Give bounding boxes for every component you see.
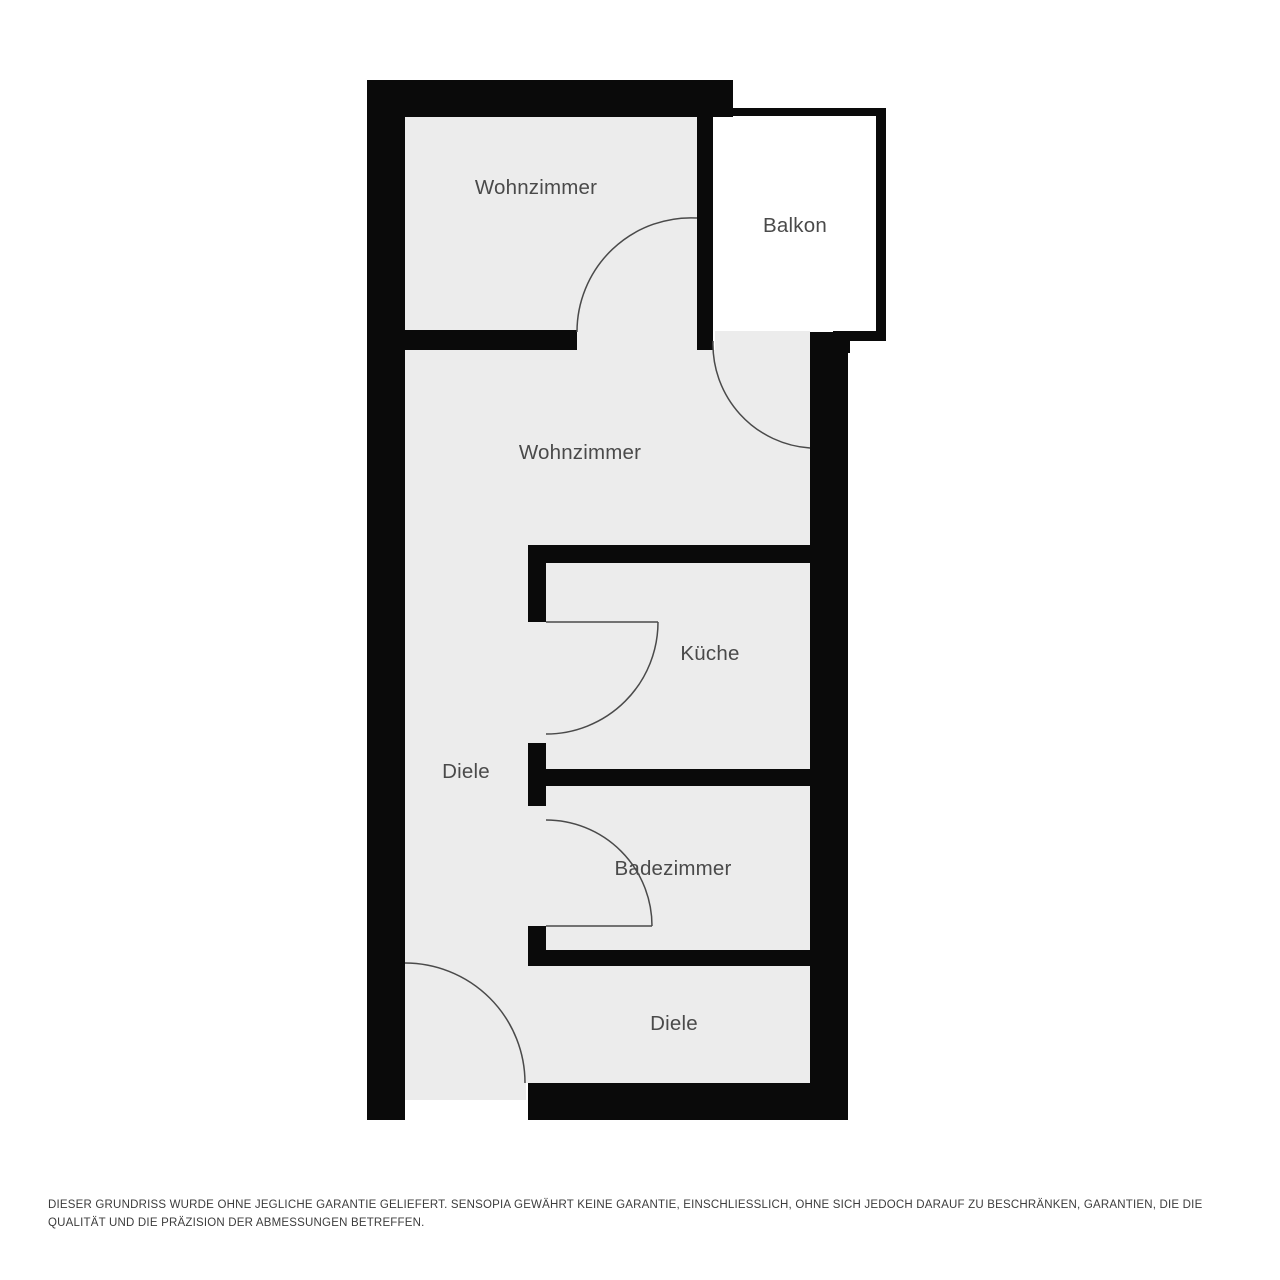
door-arc-entrance	[405, 963, 525, 1083]
disclaimer-text: DIESER GRUNDRISS WURDE OHNE JEGLICHE GAR…	[48, 1196, 1218, 1232]
door-arc-wohnzimmer-top	[577, 218, 697, 332]
room-label-balkon: Balkon	[763, 214, 827, 238]
room-label-kueche: Küche	[680, 642, 739, 666]
floor-plan: Wohnzimmer Balkon Wohnzimmer Küche Diele…	[0, 0, 1280, 1280]
door-arc-kueche	[546, 622, 658, 734]
room-label-diele-corridor: Diele	[442, 760, 490, 784]
door-swings	[0, 0, 1280, 1280]
room-label-wohnzimmer-main: Wohnzimmer	[519, 441, 641, 465]
room-label-diele-bottom: Diele	[650, 1012, 698, 1036]
door-arc-balkon	[713, 341, 810, 448]
room-label-badezimmer: Badezimmer	[614, 857, 731, 881]
room-label-wohnzimmer-top: Wohnzimmer	[475, 176, 597, 200]
